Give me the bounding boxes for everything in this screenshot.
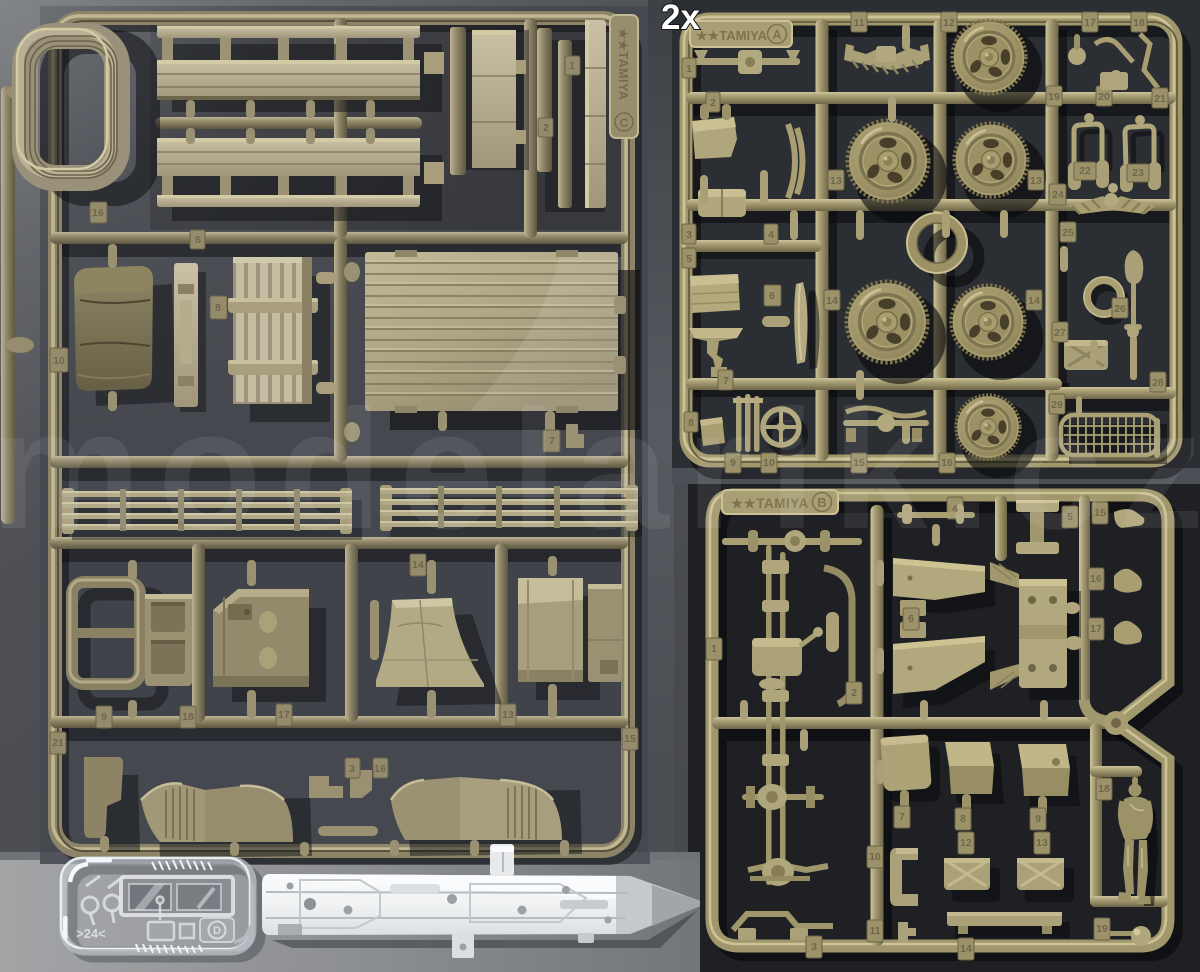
svg-text:★★TAMIYA: ★★TAMIYA [696,28,768,43]
svg-text:12: 12 [960,837,972,849]
svg-text:14: 14 [826,295,838,307]
svg-text:21: 21 [52,737,64,749]
svg-text:2: 2 [543,122,549,134]
svg-text:2: 2 [710,97,716,109]
svg-text:20: 20 [1098,91,1110,103]
svg-text:22: 22 [1079,165,1091,177]
svg-text:11: 11 [853,17,864,29]
svg-text:10: 10 [869,851,881,863]
svg-text:17: 17 [278,709,290,721]
svg-text:19: 19 [1048,91,1060,103]
svg-text:17: 17 [1084,17,1096,29]
svg-text:8: 8 [215,302,221,314]
svg-text:>24<: >24< [76,926,106,941]
svg-text:8: 8 [960,813,966,825]
svg-text:13: 13 [830,175,842,187]
svg-text:3: 3 [811,941,817,953]
svg-text:15: 15 [624,733,636,745]
svg-text:23: 23 [1132,167,1144,179]
svg-text:3: 3 [349,763,355,775]
svg-text:27: 27 [1054,327,1066,339]
svg-text:10: 10 [53,355,65,367]
svg-text:2: 2 [851,687,857,699]
svg-text:16: 16 [1090,573,1102,585]
svg-text:6: 6 [195,234,201,246]
svg-text:5: 5 [686,253,692,265]
svg-text:13: 13 [1036,837,1048,849]
svg-text:16: 16 [374,763,386,775]
svg-text:17: 17 [1090,623,1102,635]
svg-text:26: 26 [1114,303,1126,315]
svg-text:18: 18 [182,711,194,723]
svg-text:19: 19 [1096,923,1108,935]
svg-text:14: 14 [1028,295,1040,307]
svg-text:3: 3 [686,229,692,241]
svg-text:24: 24 [1052,189,1064,201]
svg-text:★★TAMIYA: ★★TAMIYA [616,28,630,100]
svg-text:A: A [772,28,781,42]
svg-text:16: 16 [92,207,104,219]
svg-text:1: 1 [711,643,717,655]
svg-text:18: 18 [1133,17,1145,29]
svg-text:7: 7 [899,811,905,823]
svg-text:4: 4 [768,229,774,241]
svg-text:14: 14 [960,943,972,955]
svg-text:C: C [620,116,629,130]
svg-text:1: 1 [686,63,692,75]
svg-text:12: 12 [943,17,955,29]
svg-text:13: 13 [502,709,514,721]
svg-text:2x: 2x [661,0,700,37]
svg-text:modelarik.cz: modelarik.cz [0,375,1200,565]
svg-text:11: 11 [869,925,880,937]
svg-text:D: D [213,925,221,937]
svg-text:6: 6 [769,290,775,302]
svg-text:6: 6 [908,613,914,625]
svg-text:1: 1 [569,60,575,72]
svg-text:25: 25 [1062,227,1074,239]
svg-text:9: 9 [101,711,107,723]
svg-text:13: 13 [1030,175,1042,187]
svg-text:18: 18 [1098,783,1110,795]
svg-text:21: 21 [1154,93,1166,105]
svg-text:9: 9 [1035,813,1041,825]
